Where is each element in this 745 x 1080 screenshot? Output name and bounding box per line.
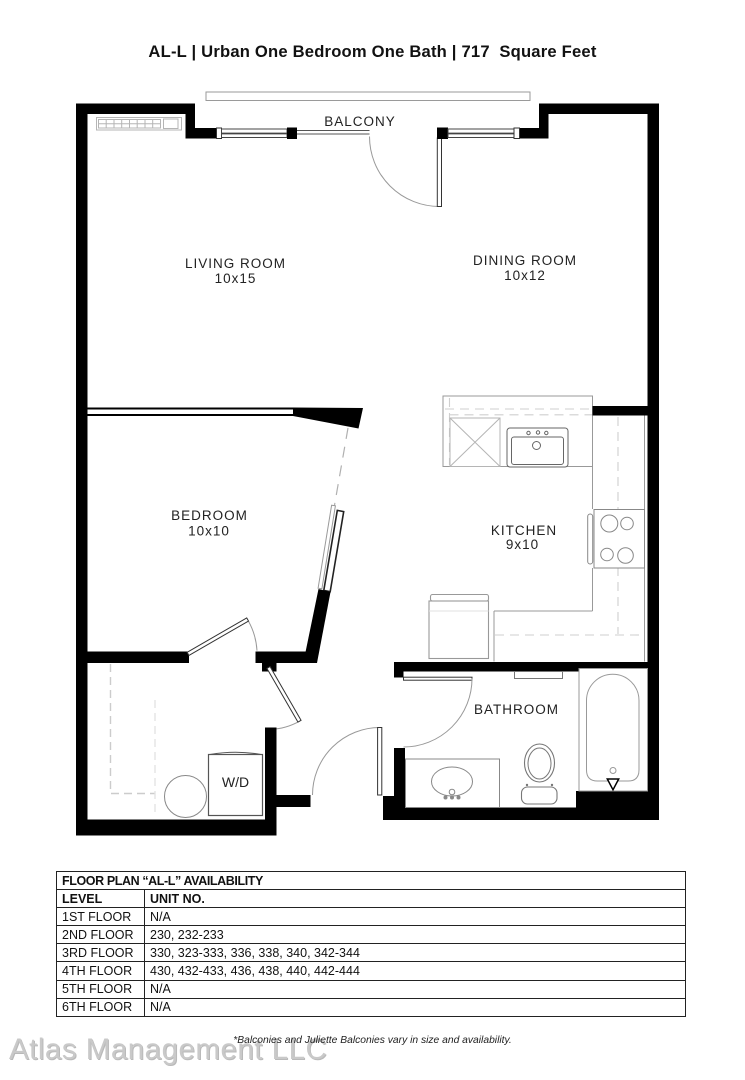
svg-text:LIVING ROOM: LIVING ROOM	[185, 256, 286, 271]
svg-text:BEDROOM: BEDROOM	[171, 508, 248, 523]
svg-text:BALCONY: BALCONY	[324, 114, 396, 129]
svg-text:BATHROOM: BATHROOM	[474, 702, 559, 717]
svg-text:DINING ROOM: DINING ROOM	[473, 253, 577, 268]
svg-text:KITCHEN: KITCHEN	[491, 523, 557, 538]
svg-text:9x10: 9x10	[506, 537, 539, 552]
svg-text:10x15: 10x15	[215, 271, 257, 286]
svg-text:10x12: 10x12	[504, 268, 546, 283]
svg-text:10x10: 10x10	[188, 524, 230, 539]
svg-text:W/D: W/D	[222, 774, 249, 790]
